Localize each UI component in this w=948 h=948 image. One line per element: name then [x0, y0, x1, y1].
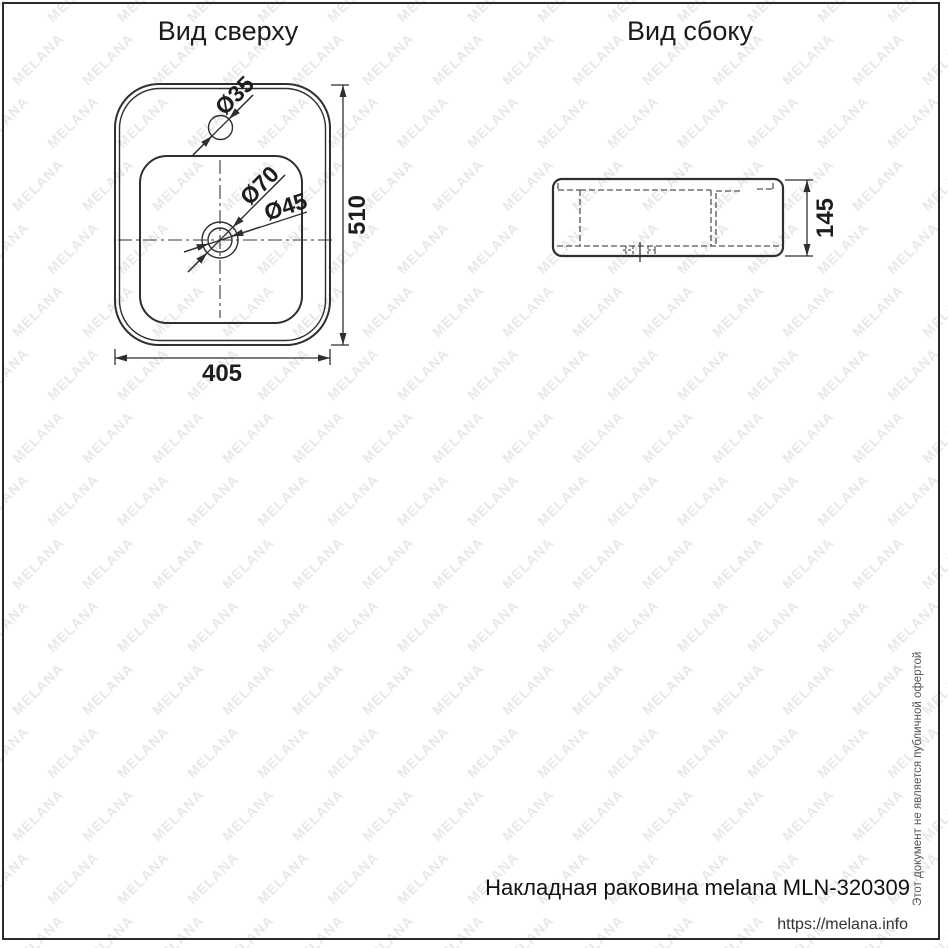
- watermark-text: MELANA: [814, 723, 872, 781]
- watermark-text: MELANA: [534, 345, 592, 403]
- watermark-text: MELANA: [324, 471, 382, 529]
- watermark-text: MELANA: [219, 786, 277, 844]
- top-view-title: Вид сверху: [118, 16, 338, 47]
- watermark-text: MELANA: [499, 786, 557, 844]
- watermark-text: MELANA: [464, 219, 522, 277]
- watermark-text: MELANA: [779, 786, 837, 844]
- watermark-text: MELANA: [709, 534, 767, 592]
- watermark-text: MELANA: [149, 912, 207, 948]
- watermark-text: MELANA: [429, 534, 487, 592]
- watermark-text: MELANA: [394, 345, 452, 403]
- faucet-hole-diameter-label: Ø35: [210, 71, 259, 120]
- watermark-text: MELANA: [429, 660, 487, 718]
- drawing-sheet: MELANAMELANAMELANAMELANAMELANAMELANAMELA…: [0, 0, 948, 948]
- watermark-text: MELANA: [884, 219, 942, 277]
- watermark-text: MELANA: [464, 597, 522, 655]
- watermark-text: MELANA: [114, 471, 172, 529]
- watermark-text: MELANA: [639, 408, 697, 466]
- product-title: Накладная раковина melana MLN-320309: [310, 875, 910, 901]
- watermark-text: MELANA: [359, 786, 417, 844]
- watermark-text: MELANA: [0, 345, 32, 403]
- watermark-text: MELANA: [674, 723, 732, 781]
- watermark-text: MELANA: [849, 156, 907, 214]
- watermark-text: MELANA: [79, 912, 137, 948]
- watermark-text: MELANA: [44, 471, 102, 529]
- watermark-text: MELANA: [359, 912, 417, 948]
- watermark-text: MELANA: [919, 534, 948, 592]
- watermark-text: MELANA: [639, 660, 697, 718]
- watermark-text: MELANA: [0, 0, 32, 25]
- watermark-text: MELANA: [254, 723, 312, 781]
- watermark-text: MELANA: [674, 93, 732, 151]
- watermark-text: MELANA: [779, 282, 837, 340]
- watermark-text: MELANA: [184, 849, 242, 907]
- watermark-text: MELANA: [849, 30, 907, 88]
- watermark-text: MELANA: [569, 660, 627, 718]
- watermark-text: MELANA: [709, 786, 767, 844]
- watermark-text: MELANA: [534, 597, 592, 655]
- watermark-text: MELANA: [254, 471, 312, 529]
- watermark-text: MELANA: [884, 471, 942, 529]
- watermark-text: MELANA: [9, 660, 67, 718]
- watermark-text: MELANA: [849, 282, 907, 340]
- watermark-text: MELANA: [254, 849, 312, 907]
- watermark-text: MELANA: [114, 849, 172, 907]
- watermark-text: MELANA: [219, 660, 277, 718]
- watermark-text: MELANA: [219, 534, 277, 592]
- side-view-drawing: 145: [545, 170, 845, 275]
- watermark-text: MELANA: [394, 723, 452, 781]
- watermark-text: MELANA: [569, 786, 627, 844]
- watermark-text: MELANA: [289, 408, 347, 466]
- watermark-text: MELANA: [394, 93, 452, 151]
- watermark-text: MELANA: [149, 786, 207, 844]
- watermark-text: MELANA: [0, 93, 32, 151]
- watermark-text: MELANA: [324, 597, 382, 655]
- watermark-text: MELANA: [429, 156, 487, 214]
- watermark-text: MELANA: [9, 912, 67, 948]
- watermark-text: MELANA: [79, 660, 137, 718]
- watermark-text: MELANA: [394, 0, 452, 25]
- watermark-text: MELANA: [429, 786, 487, 844]
- watermark-text: MELANA: [779, 534, 837, 592]
- watermark-text: MELANA: [919, 282, 948, 340]
- watermark-text: MELANA: [674, 597, 732, 655]
- watermark-text: MELANA: [289, 912, 347, 948]
- watermark-text: MELANA: [709, 282, 767, 340]
- watermark-text: MELANA: [359, 534, 417, 592]
- watermark-text: MELANA: [359, 660, 417, 718]
- watermark-text: MELANA: [814, 597, 872, 655]
- watermark-text: MELANA: [394, 471, 452, 529]
- watermark-text: MELANA: [569, 408, 627, 466]
- watermark-text: MELANA: [849, 534, 907, 592]
- watermark-text: MELANA: [464, 0, 522, 25]
- watermark-text: MELANA: [0, 219, 32, 277]
- watermark-text: MELANA: [9, 786, 67, 844]
- watermark-text: MELANA: [884, 0, 942, 25]
- watermark-text: MELANA: [639, 282, 697, 340]
- watermark-text: MELANA: [604, 93, 662, 151]
- watermark-text: MELANA: [464, 93, 522, 151]
- watermark-text: MELANA: [814, 93, 872, 151]
- watermark-text: MELANA: [884, 597, 942, 655]
- dim-height-145: 145: [812, 198, 839, 238]
- watermark-text: MELANA: [324, 723, 382, 781]
- watermark-text: MELANA: [114, 597, 172, 655]
- watermark-text: MELANA: [499, 534, 557, 592]
- watermark-text: MELANA: [604, 345, 662, 403]
- watermark-text: MELANA: [674, 471, 732, 529]
- legal-notice-vertical: Этот документ не является публичной офер…: [912, 652, 924, 906]
- watermark-text: MELANA: [779, 660, 837, 718]
- watermark-text: MELANA: [289, 786, 347, 844]
- watermark-text: MELANA: [9, 156, 67, 214]
- watermark-text: MELANA: [884, 345, 942, 403]
- watermark-text: MELANA: [499, 30, 557, 88]
- watermark-text: MELANA: [919, 912, 948, 948]
- watermark-text: MELANA: [744, 723, 802, 781]
- watermark-text: MELANA: [919, 408, 948, 466]
- watermark-text: MELANA: [744, 93, 802, 151]
- watermark-text: MELANA: [9, 408, 67, 466]
- watermark-text: MELANA: [0, 471, 32, 529]
- watermark-text: MELANA: [499, 408, 557, 466]
- watermark-text: MELANA: [184, 471, 242, 529]
- watermark-text: MELANA: [429, 408, 487, 466]
- watermark-text: MELANA: [9, 282, 67, 340]
- watermark-text: MELANA: [0, 597, 32, 655]
- dim-height-510: 510: [344, 195, 371, 235]
- website-url[interactable]: https://melana.info: [508, 916, 908, 934]
- watermark-text: MELANA: [79, 786, 137, 844]
- watermark-text: MELANA: [149, 660, 207, 718]
- watermark-text: MELANA: [9, 30, 67, 88]
- watermark-text: MELANA: [534, 471, 592, 529]
- watermark-text: MELANA: [219, 912, 277, 948]
- watermark-text: MELANA: [44, 849, 102, 907]
- watermark-text: MELANA: [919, 30, 948, 88]
- watermark-text: MELANA: [0, 723, 32, 781]
- watermark-text: MELANA: [534, 93, 592, 151]
- watermark-text: MELANA: [814, 471, 872, 529]
- dim-width-405: 405: [202, 360, 242, 387]
- watermark-text: MELANA: [744, 471, 802, 529]
- watermark-text: MELANA: [709, 660, 767, 718]
- watermark-text: MELANA: [464, 723, 522, 781]
- watermark-text: MELANA: [849, 786, 907, 844]
- watermark-text: MELANA: [604, 597, 662, 655]
- watermark-text: MELANA: [464, 345, 522, 403]
- watermark-text: MELANA: [814, 345, 872, 403]
- watermark-text: MELANA: [779, 408, 837, 466]
- watermark-text: MELANA: [604, 471, 662, 529]
- watermark-text: MELANA: [394, 219, 452, 277]
- watermark-text: MELANA: [499, 282, 557, 340]
- watermark-text: MELANA: [849, 408, 907, 466]
- top-view-drawing: Ø35 Ø70 Ø45 510 405: [85, 50, 395, 390]
- watermark-text: MELANA: [79, 408, 137, 466]
- watermark-text: MELANA: [79, 534, 137, 592]
- watermark-text: MELANA: [44, 597, 102, 655]
- watermark-text: MELANA: [919, 156, 948, 214]
- watermark-text: MELANA: [674, 345, 732, 403]
- watermark-text: MELANA: [499, 660, 557, 718]
- watermark-text: MELANA: [0, 849, 32, 907]
- watermark-text: MELANA: [44, 0, 102, 25]
- watermark-text: MELANA: [44, 723, 102, 781]
- watermark-text: MELANA: [709, 408, 767, 466]
- watermark-text: MELANA: [9, 534, 67, 592]
- watermark-text: MELANA: [394, 597, 452, 655]
- watermark-text: MELANA: [814, 0, 872, 25]
- watermark-text: MELANA: [149, 408, 207, 466]
- watermark-text: MELANA: [429, 282, 487, 340]
- watermark-text: MELANA: [569, 534, 627, 592]
- watermark-text: MELANA: [884, 93, 942, 151]
- watermark-text: MELANA: [604, 723, 662, 781]
- watermark-text: MELANA: [849, 660, 907, 718]
- watermark-text: MELANA: [464, 471, 522, 529]
- watermark-text: MELANA: [744, 597, 802, 655]
- watermark-text: MELANA: [289, 534, 347, 592]
- watermark-text: MELANA: [359, 408, 417, 466]
- watermark-text: MELANA: [569, 282, 627, 340]
- watermark-text: MELANA: [184, 723, 242, 781]
- watermark-text: MELANA: [149, 534, 207, 592]
- watermark-text: MELANA: [639, 534, 697, 592]
- watermark-text: MELANA: [114, 723, 172, 781]
- watermark-text: MELANA: [254, 597, 312, 655]
- watermark-text: MELANA: [429, 30, 487, 88]
- side-view-title: Вид сбоку: [580, 16, 800, 47]
- watermark-text: MELANA: [429, 912, 487, 948]
- watermark-text: MELANA: [219, 408, 277, 466]
- side-outline: [553, 179, 783, 256]
- watermark-text: MELANA: [639, 786, 697, 844]
- watermark-text: MELANA: [534, 723, 592, 781]
- watermark-text: MELANA: [289, 660, 347, 718]
- watermark-text: MELANA: [184, 597, 242, 655]
- watermark-text: MELANA: [744, 345, 802, 403]
